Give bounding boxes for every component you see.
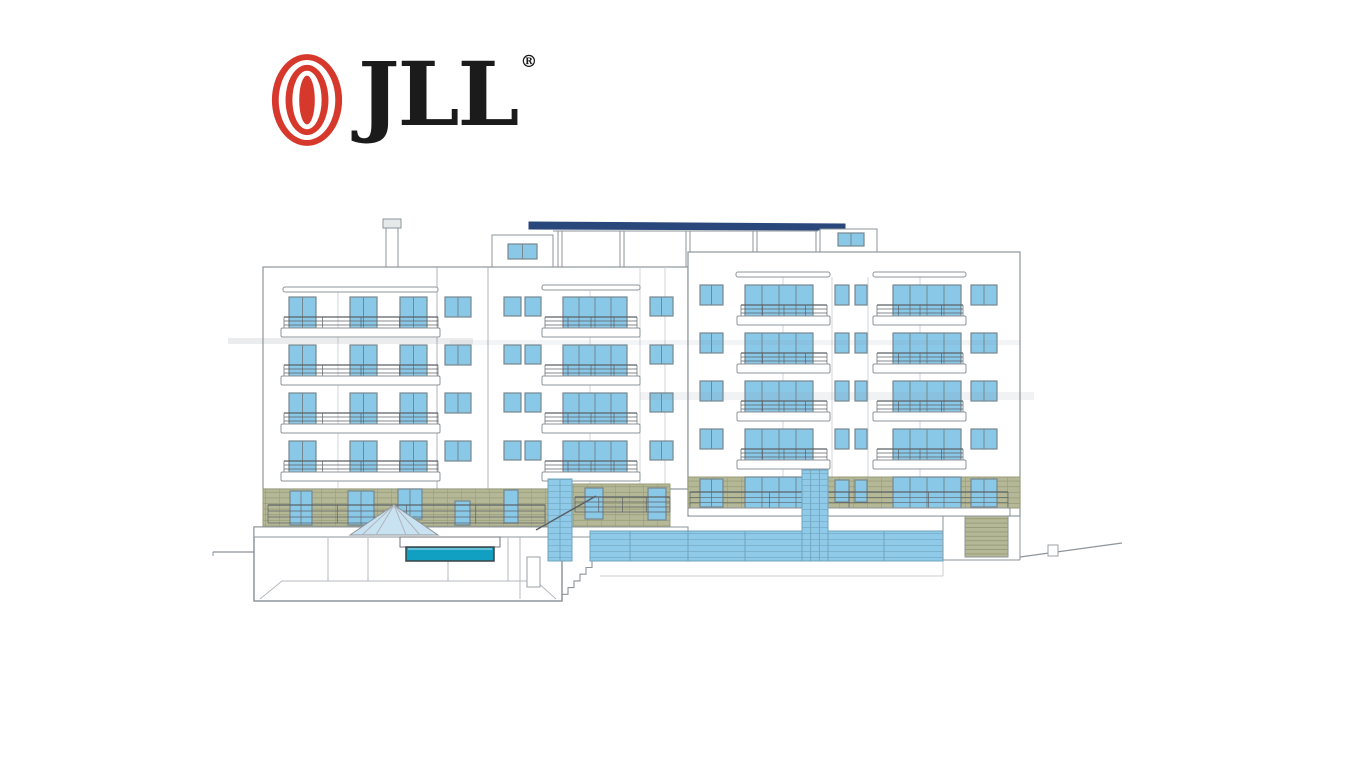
- window-glass: [525, 393, 541, 412]
- balcony-door: [289, 441, 316, 472]
- door: [527, 557, 540, 587]
- balcony-door: [400, 297, 427, 328]
- balcony-door: [289, 345, 316, 376]
- chimney: [386, 228, 398, 267]
- window: [650, 297, 673, 316]
- window-glass: [855, 429, 867, 449]
- balcony-door: [350, 345, 377, 376]
- canopy-ledge: [736, 272, 830, 277]
- window: [648, 488, 666, 520]
- chimney-cap: [383, 219, 401, 228]
- window: [445, 297, 471, 317]
- globe-ring: [299, 76, 315, 125]
- balcony-slab: [737, 316, 830, 325]
- balcony-slab: [542, 376, 640, 385]
- garage-door: [965, 516, 1008, 557]
- window: [445, 441, 471, 461]
- balcony-door: [350, 393, 377, 424]
- balcony-door: [745, 333, 813, 364]
- jll-logo: JLL®: [268, 48, 534, 148]
- navy-roof-band: [529, 222, 845, 230]
- window: [525, 393, 541, 412]
- balcony-slab: [873, 460, 966, 469]
- window-glass: [525, 345, 541, 364]
- balcony-door: [563, 393, 627, 424]
- balcony-slab: [542, 424, 640, 433]
- balcony-door: [400, 345, 427, 376]
- window-glass: [855, 285, 867, 305]
- balcony-slab: [281, 376, 440, 385]
- window: [971, 429, 997, 449]
- balcony-door: [289, 393, 316, 424]
- window: [838, 233, 864, 246]
- terrace-slab: [688, 508, 1010, 516]
- window: [855, 429, 867, 449]
- balcony-slab: [737, 460, 830, 469]
- ground-step: [1048, 545, 1058, 556]
- balcony-door: [745, 285, 813, 316]
- glazing: [802, 470, 828, 561]
- balcony-door: [893, 285, 961, 316]
- window: [525, 345, 541, 364]
- balcony-slab: [873, 316, 966, 325]
- jll-globe-icon: [268, 52, 346, 148]
- balcony-door: [893, 429, 961, 460]
- window: [700, 285, 723, 305]
- window: [504, 490, 518, 523]
- balcony-slab: [873, 412, 966, 421]
- window: [700, 429, 723, 449]
- scan-streak: [640, 392, 1034, 400]
- jll-wordmark-text: JLL: [358, 42, 517, 146]
- window: [650, 345, 673, 364]
- balcony-door: [893, 333, 961, 364]
- window-glass: [504, 393, 521, 412]
- window: [525, 441, 541, 460]
- balcony-door: [289, 297, 316, 328]
- window-glass: [835, 429, 849, 449]
- window: [525, 297, 541, 316]
- canopy-ledge: [542, 285, 640, 290]
- balcony-door: [745, 429, 813, 460]
- canopy-ledge: [873, 272, 966, 277]
- balcony-slab: [542, 328, 640, 337]
- window-glass: [855, 480, 867, 502]
- window-glass: [504, 441, 521, 460]
- window: [508, 244, 537, 259]
- back-block: [263, 267, 688, 489]
- window-glass: [525, 297, 541, 316]
- window: [835, 429, 849, 449]
- balcony-slab: [281, 328, 440, 337]
- balcony-slab: [737, 364, 830, 373]
- facade: [688, 252, 1020, 516]
- scan-streak: [228, 338, 473, 344]
- balcony-door: [350, 297, 377, 328]
- elevator-shaft-glazing: [802, 470, 828, 561]
- balcony-slab: [281, 424, 440, 433]
- window: [504, 345, 521, 364]
- scan-streak: [450, 340, 1020, 345]
- window: [855, 480, 867, 502]
- balcony-door: [400, 441, 427, 472]
- ground-slope: [1020, 543, 1122, 557]
- window: [290, 491, 312, 525]
- window-glass: [585, 488, 603, 519]
- balcony-door: [563, 297, 627, 328]
- elevation-drawing: [0, 0, 1352, 767]
- registered-mark: ®: [520, 52, 537, 72]
- window: [348, 491, 374, 525]
- stair-shaft-glazing: [548, 479, 572, 561]
- window: [445, 393, 471, 413]
- window-glass: [525, 441, 541, 460]
- balcony-door: [563, 345, 627, 376]
- window: [835, 480, 849, 502]
- window: [445, 345, 471, 365]
- window: [855, 285, 867, 305]
- window-glass: [835, 480, 849, 502]
- canopy-ledge: [283, 287, 438, 292]
- pool-coping: [400, 537, 500, 547]
- window: [504, 393, 521, 412]
- exterior-stairs: [562, 561, 598, 601]
- balcony-slab: [281, 472, 440, 481]
- window-glass: [504, 297, 521, 316]
- window-glass: [504, 490, 518, 523]
- balcony-slab: [737, 412, 830, 421]
- window: [835, 285, 849, 305]
- jll-wordmark: JLL®: [358, 50, 534, 138]
- page: JLL®: [0, 0, 1352, 767]
- balcony-door: [350, 441, 377, 472]
- ground-glazed-wall: [590, 531, 943, 561]
- balcony-door: [400, 393, 427, 424]
- window-glass: [504, 345, 521, 364]
- window: [504, 297, 521, 316]
- balcony-slab: [873, 364, 966, 373]
- window-glass: [835, 285, 849, 305]
- balcony-door: [563, 441, 627, 472]
- right-block: [688, 252, 1020, 516]
- window-glass: [648, 488, 666, 520]
- window: [504, 441, 521, 460]
- window: [650, 441, 673, 460]
- window: [585, 488, 603, 519]
- window: [971, 285, 997, 305]
- glazing: [590, 531, 943, 561]
